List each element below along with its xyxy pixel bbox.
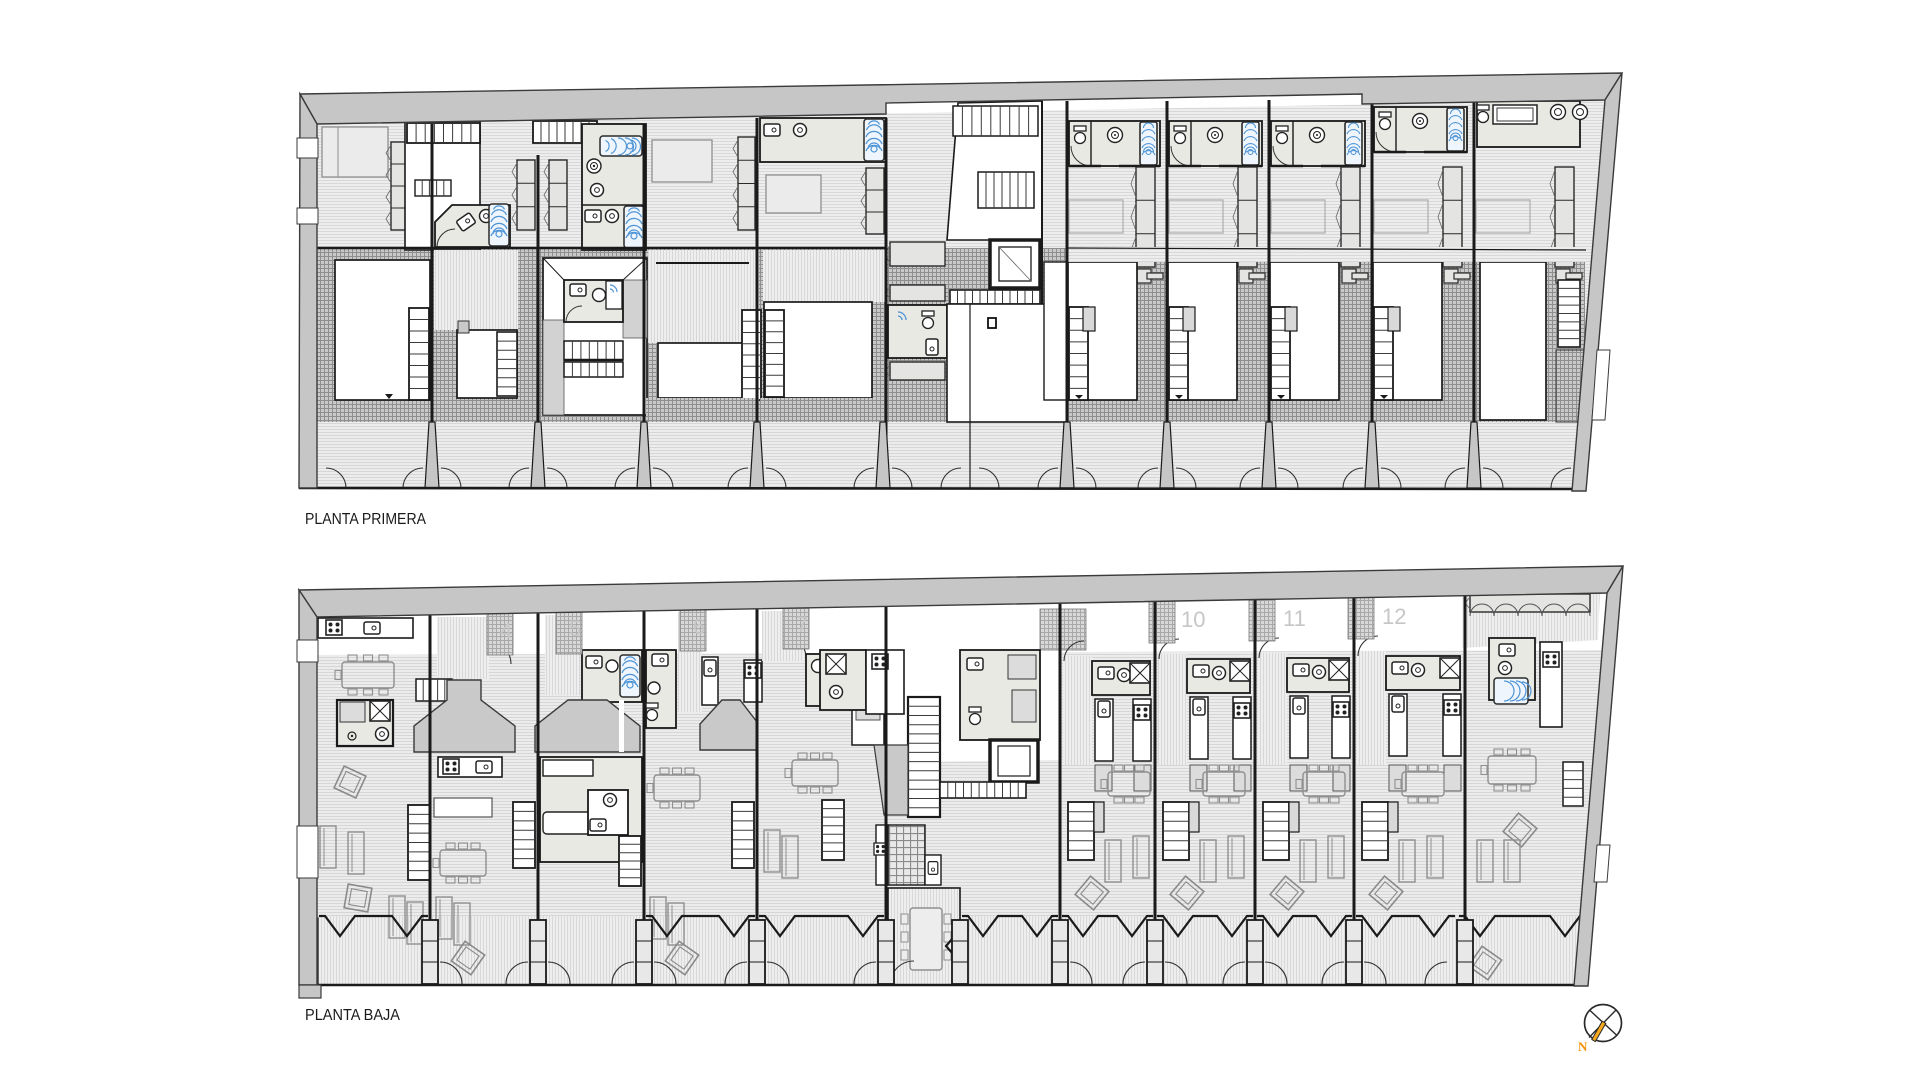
svg-text:5: 5 <box>569 616 581 641</box>
svg-text:10: 10 <box>1181 607 1205 632</box>
svg-text:7: 7 <box>796 612 808 637</box>
svg-text:11: 11 <box>1283 606 1306 631</box>
svg-text:N: N <box>1578 1039 1588 1054</box>
svg-text:PLANTA PRIMERA: PLANTA PRIMERA <box>305 511 426 528</box>
svg-text:6: 6 <box>693 614 705 639</box>
svg-text:PLANTA BAJA: PLANTA BAJA <box>305 1007 400 1024</box>
svg-text:12: 12 <box>1382 604 1406 629</box>
svg-text:4: 4 <box>500 618 512 643</box>
